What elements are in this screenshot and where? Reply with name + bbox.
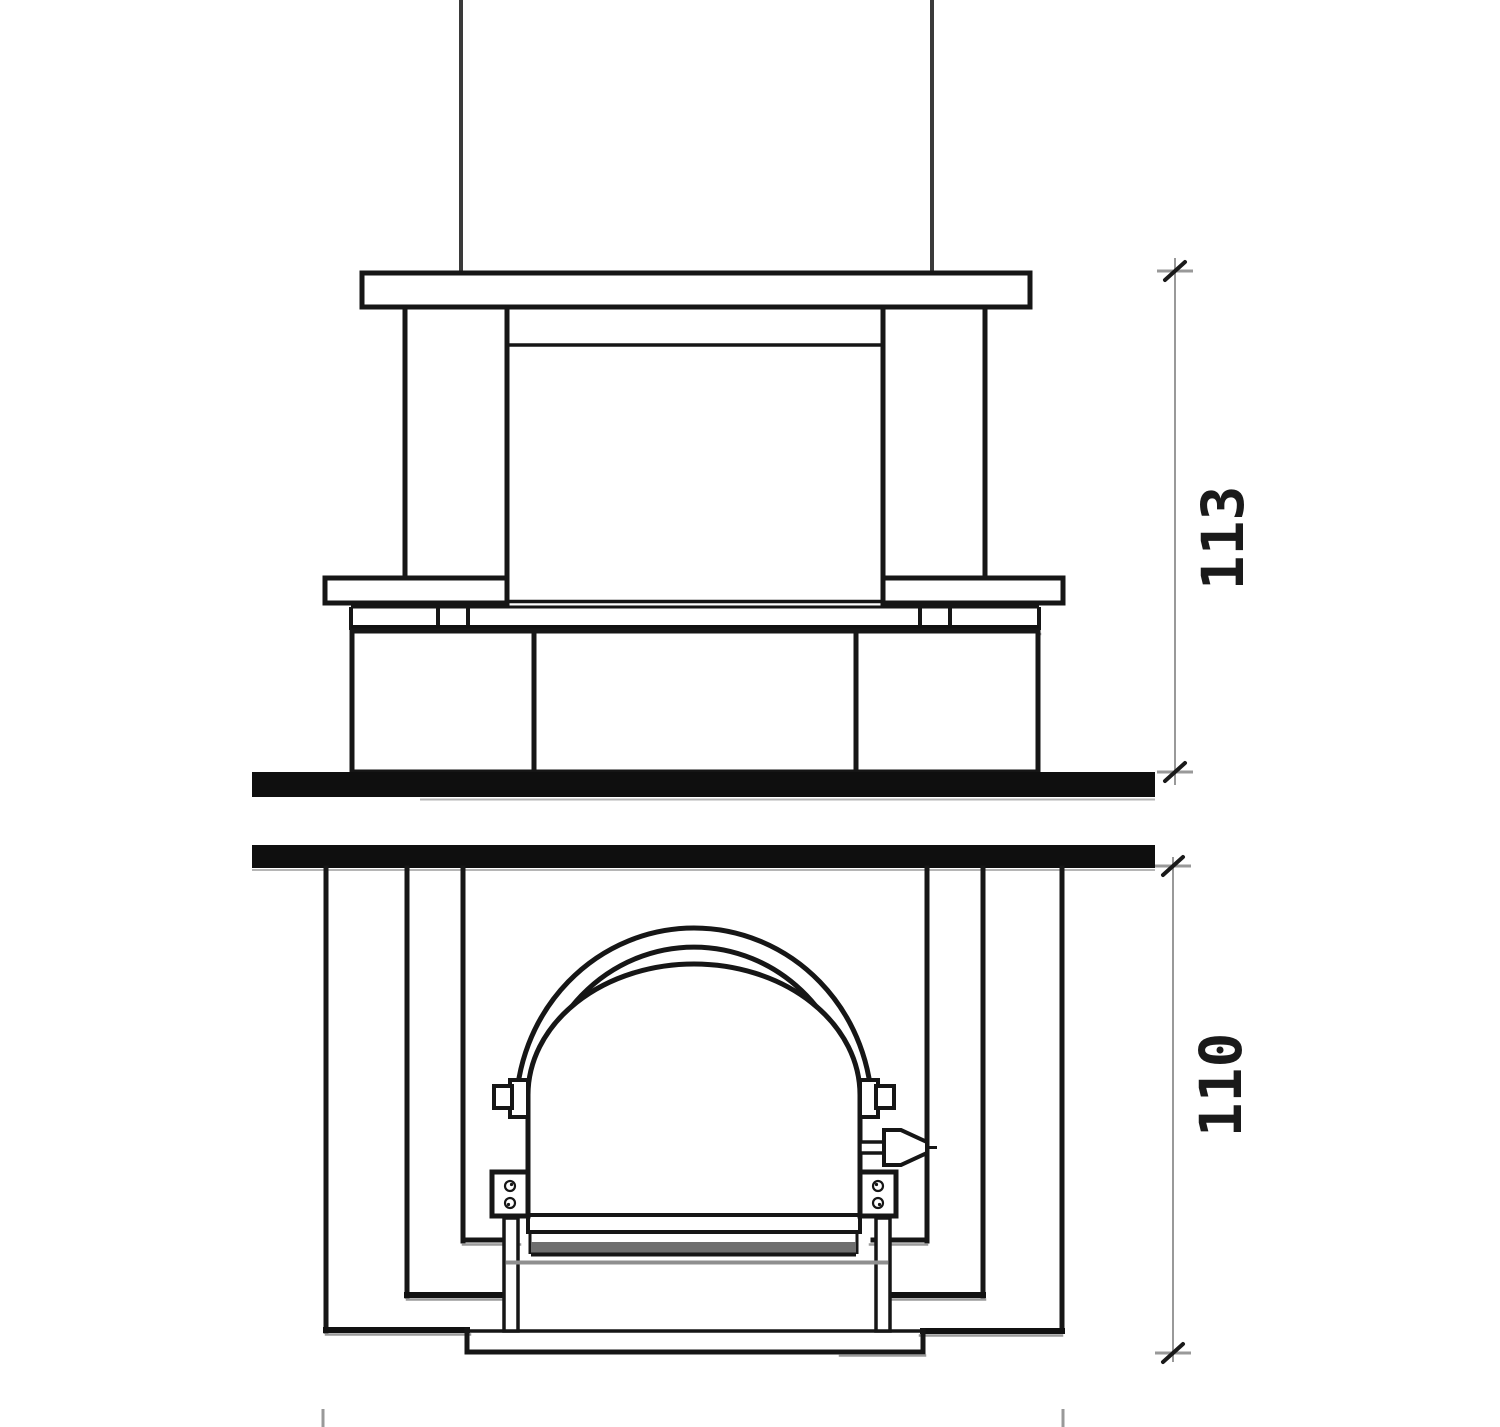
handle-stem [860, 1142, 884, 1153]
stove-elevation-drawing: 113 110 [0, 0, 1500, 1427]
technical-drawing-page: 113 110 [0, 0, 1500, 1427]
threshold-band-top [528, 1215, 860, 1232]
dimension-upper-113: 113 [1157, 258, 1257, 785]
upper-base-block-middle [534, 631, 856, 772]
door-post-right [876, 1218, 890, 1331]
door-post-left [504, 1218, 518, 1331]
dim-110-label: 110 [1187, 1033, 1255, 1138]
door-hinge-left [492, 1172, 528, 1216]
door-pivot-tab-right [860, 1080, 894, 1117]
door-posts [504, 1218, 890, 1331]
threshold-gray-band [531, 1242, 856, 1253]
bench-slab-lower [252, 845, 1155, 868]
shelf-right-rect [883, 578, 1063, 603]
tab-left-nub [494, 1086, 512, 1108]
hinge-right-screw-dot-a [875, 1183, 878, 1186]
shelf-left-rect [325, 578, 507, 603]
dim-113-label: 113 [1189, 486, 1257, 591]
door-threshold [506, 1215, 888, 1263]
bench-slab-upper [252, 772, 1155, 797]
hinge-left-screw-dot-a [510, 1183, 513, 1186]
upper-base-blocks [352, 631, 1038, 772]
upper-base-block-left [352, 631, 534, 772]
handle-knob [884, 1130, 927, 1165]
door-hinge-right [860, 1172, 896, 1216]
hinge-right-screw-dot-b [878, 1203, 881, 1206]
benchtop-slabs [252, 772, 1155, 870]
plinth [467, 1330, 925, 1356]
shelf-band [325, 578, 1063, 634]
fire-door [492, 928, 937, 1331]
door-leaf [528, 964, 860, 1215]
support-columns [405, 307, 985, 603]
upper-base-block-right [856, 631, 1038, 772]
dimension-bottom-cutoff [323, 1409, 1063, 1427]
tab-right-nub [876, 1086, 894, 1108]
hinge-left-block [492, 1172, 528, 1216]
chimney-pipes [461, 0, 932, 274]
cap-slab-rect [362, 273, 1030, 307]
top-cap-slab [362, 273, 1030, 307]
door-pivot-tab-left [494, 1080, 528, 1117]
dimension-lower-110: 110 [1155, 857, 1255, 1362]
hinge-right-block [860, 1172, 896, 1216]
hinge-left-screw-dot-b [507, 1203, 510, 1206]
